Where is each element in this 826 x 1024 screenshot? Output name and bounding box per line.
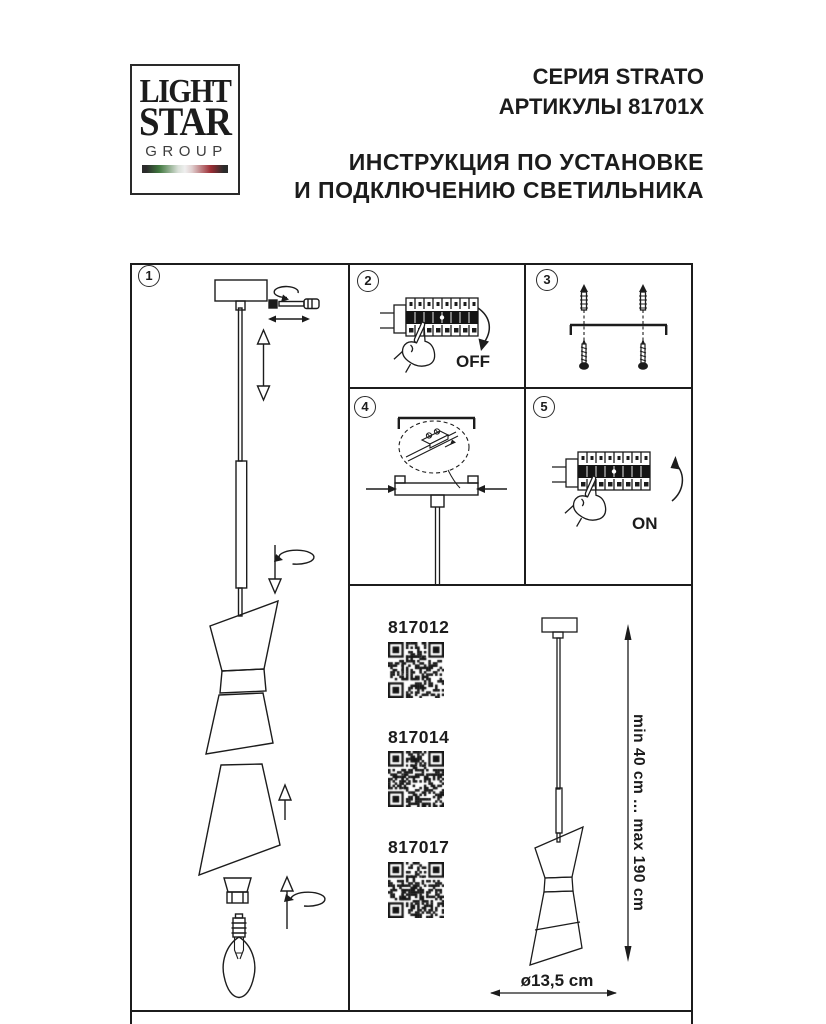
instruction-sheet: LIGHT STAR GROUP СЕРИЯ STRATO АРТИКУЛЫ 8…: [0, 0, 826, 1024]
suspension-cord: [436, 507, 440, 584]
up-down-arrow-icon: [258, 330, 270, 400]
screw-right: [638, 339, 648, 370]
ceiling-canopy: [395, 476, 478, 495]
lower-shade: [199, 764, 280, 875]
power-on-label: ON: [632, 514, 658, 534]
screw-left: [579, 339, 589, 370]
step-3-diagram-wall-mounting: [526, 265, 691, 386]
articles-title: АРТИКУЛЫ 81701X: [294, 92, 704, 122]
step-4-diagram-wiring: [350, 389, 524, 584]
rotate-arrow-icon: [274, 287, 298, 298]
upper-shade: [206, 601, 278, 754]
wall-plug-left: [580, 284, 588, 343]
instruction-line-1: ИНСТРУКЦИЯ ПО УСТАНОВКЕ: [294, 148, 704, 176]
turn-off-arrow-icon: [478, 308, 489, 351]
instruction-title: ИНСТРУКЦИЯ ПО УСТАНОВКЕ И ПОДКЛЮЧЕНИЮ СВ…: [294, 148, 704, 204]
set-screw: [269, 300, 277, 308]
instruction-line-2: И ПОДКЛЮЧЕНИЮ СВЕТИЛЬНИКА: [294, 176, 704, 204]
rotate-down-arrow-icon: [269, 545, 314, 593]
up-arrow-icon: [279, 785, 291, 820]
rotate-up-arrow-icon: [281, 877, 325, 929]
bowtie-shade: [530, 827, 583, 965]
suspension-cord: [239, 308, 243, 461]
power-off-label: OFF: [456, 352, 490, 372]
cord-rod: [556, 788, 562, 833]
step-1-diagram-pendant-assembly: [132, 265, 348, 1010]
italian-flag-bar: [142, 165, 228, 173]
magnifier-detail: [399, 421, 469, 488]
height-dimension-label: min 40 cm ... max 190 cm: [629, 714, 647, 911]
circuit-breaker: [552, 452, 650, 490]
lightstar-logo: LIGHT STAR GROUP: [130, 64, 240, 195]
step-2-diagram-power-off: [350, 265, 524, 386]
ceiling-canopy: [215, 280, 267, 301]
logo-word-group: GROUP: [132, 144, 238, 160]
logo-word-star: STAR: [132, 105, 238, 142]
step-5-diagram-power-on: [526, 389, 691, 584]
diameter-dimension-label: ø13,5 cm: [505, 971, 609, 991]
push-in-arrows: [366, 485, 507, 493]
socket-cover: [224, 878, 251, 903]
grid-bottom-border: [130, 1010, 693, 1012]
series-title: СЕРИЯ STRATO: [294, 62, 704, 92]
grid-right-border: [691, 263, 693, 1024]
suspension-cord: [557, 638, 560, 789]
turn-on-arrow-icon: [671, 456, 683, 501]
ceiling-canopy: [542, 618, 577, 632]
cord-rod: [236, 461, 247, 588]
document-header: СЕРИЯ STRATO АРТИКУЛЫ 81701X ИНСТРУКЦИЯ …: [294, 62, 704, 204]
circuit-breaker: [380, 298, 478, 336]
wall-plug-right: [639, 284, 647, 343]
light-bulb: [223, 914, 255, 998]
